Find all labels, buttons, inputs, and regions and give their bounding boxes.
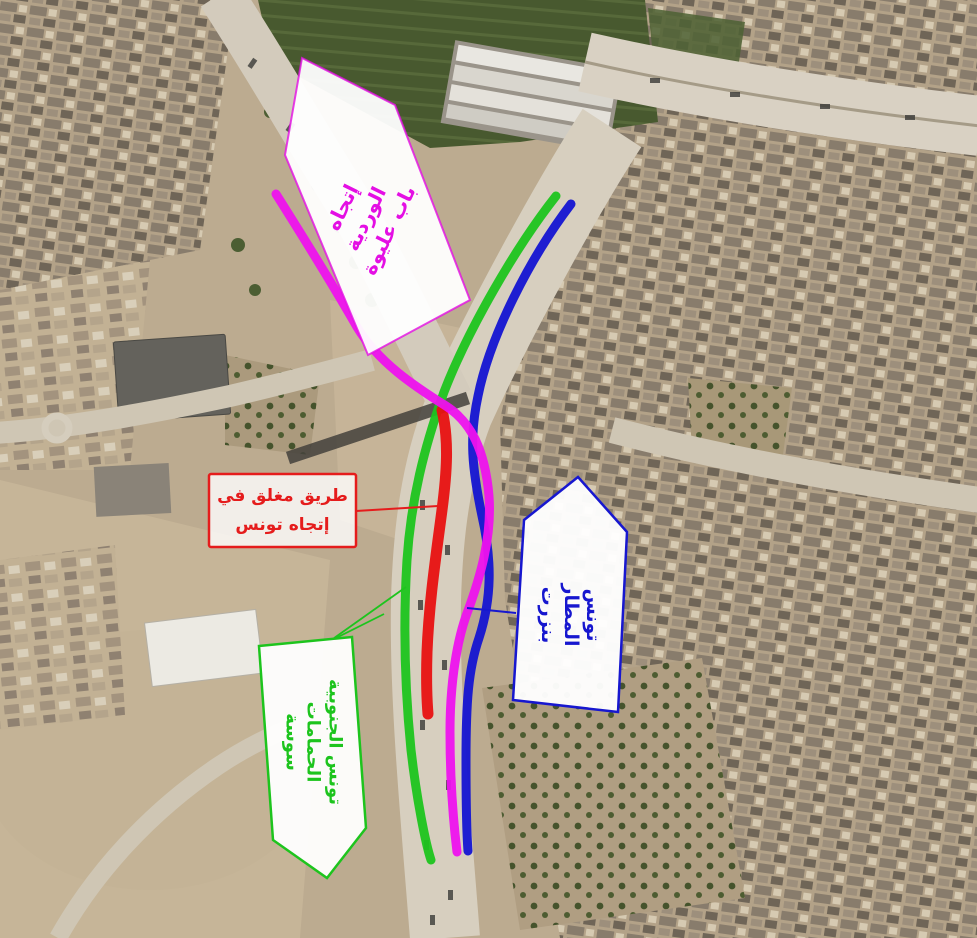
city-blocks-top-left bbox=[0, 0, 235, 290]
gray-building bbox=[94, 463, 172, 517]
southbound-arrow-callout bbox=[259, 637, 366, 878]
closed-road-box bbox=[209, 474, 356, 547]
city-blocks-left-lower bbox=[0, 545, 125, 730]
warehouse-building bbox=[145, 609, 264, 686]
satellite-map-svg bbox=[0, 0, 977, 938]
annotated-satellite-map: إتجاه الوردية باب عليوة طريق مغلق في إتج… bbox=[0, 0, 977, 938]
